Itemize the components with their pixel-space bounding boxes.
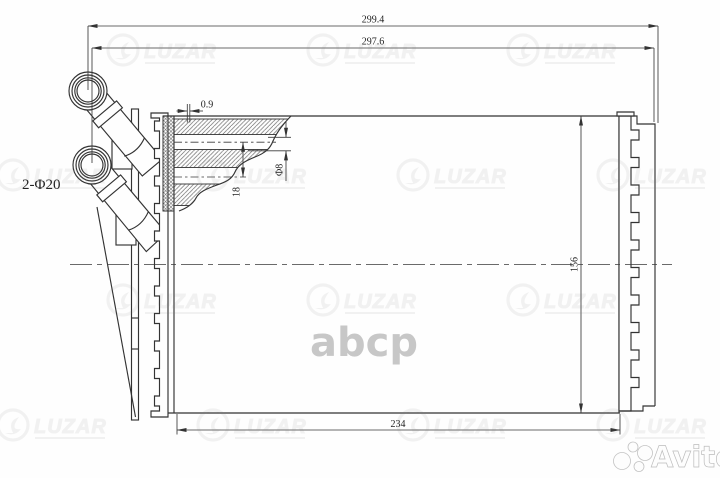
- right-header-strip: [619, 116, 639, 411]
- abcp-watermark: abcp: [310, 320, 418, 366]
- dim-text-156: 156: [570, 257, 581, 272]
- avito-logo-icon: [614, 442, 653, 472]
- right-tank-top-cap: [617, 112, 634, 116]
- dim-text-0-9: 0.9: [201, 100, 214, 111]
- avito-watermark-text: Avito: [651, 440, 720, 474]
- left-header-plate-section: [163, 116, 174, 211]
- product-photo-technical-drawing: LUZAR: [0, 0, 720, 478]
- right-tank: [617, 112, 655, 411]
- dim-overall-299: 299.4: [88, 15, 658, 124]
- dim-text-299: 299.4: [362, 15, 385, 26]
- avito-watermark: Avito: [614, 440, 720, 474]
- heater-core-drawing: LUZAR: [0, 0, 720, 478]
- fin-band: [174, 119, 294, 135]
